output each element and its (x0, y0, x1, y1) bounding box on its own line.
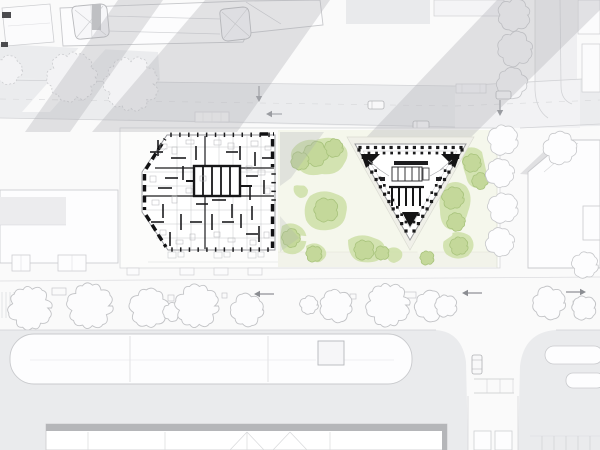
tree (306, 246, 322, 262)
column-marker (387, 191, 390, 194)
tree (450, 237, 468, 255)
tree (572, 296, 596, 320)
column-marker (447, 171, 450, 174)
column-marker (375, 178, 378, 181)
column-marker (387, 200, 390, 203)
column-marker (421, 146, 424, 149)
tree (420, 251, 434, 265)
column-marker (426, 207, 429, 210)
column-marker (379, 185, 382, 188)
tree (354, 240, 374, 260)
column-marker (422, 206, 425, 209)
column-marker (428, 152, 431, 155)
column-marker (374, 146, 377, 149)
tree (375, 246, 389, 260)
column-marker (421, 215, 424, 218)
column-marker (357, 148, 360, 151)
column-marker (374, 169, 377, 172)
column-marker (430, 200, 433, 203)
tree (435, 295, 457, 317)
column-marker (375, 152, 378, 155)
neighbor-building-west (0, 190, 118, 271)
column-marker (413, 152, 416, 155)
column-marker (443, 178, 446, 181)
column-marker (444, 146, 447, 149)
column-marker (436, 152, 439, 155)
column-marker (417, 222, 420, 225)
column-marker (434, 193, 437, 196)
tree (487, 193, 518, 223)
tree (314, 198, 338, 222)
column-marker (421, 152, 424, 155)
column-marker (383, 184, 386, 187)
column-marker (444, 169, 447, 172)
column-marker (383, 193, 386, 196)
column-marker (397, 146, 400, 149)
column-marker (436, 146, 439, 149)
column-marker (451, 152, 454, 155)
column-marker (396, 206, 399, 209)
column-marker (430, 191, 433, 194)
south-buildings (46, 424, 512, 450)
column-marker (413, 146, 416, 149)
column-marker (400, 213, 403, 216)
column-marker (392, 207, 395, 210)
site-plan-canvas (0, 0, 600, 450)
column-marker (396, 215, 399, 218)
column-marker (383, 152, 386, 155)
column-marker (412, 229, 415, 232)
column-marker (426, 199, 429, 202)
column-marker (366, 146, 369, 149)
column-marker (370, 171, 373, 174)
column-marker (390, 146, 393, 149)
tree (487, 125, 518, 155)
column-marker (405, 146, 408, 149)
column-marker (390, 152, 393, 155)
site-plan-svg (0, 0, 600, 450)
column-marker (452, 146, 455, 149)
column-marker (405, 152, 408, 155)
column-marker (400, 222, 403, 225)
column-marker (439, 185, 442, 188)
column-marker (428, 146, 431, 149)
column-marker (443, 152, 446, 155)
column-marker (368, 152, 371, 155)
column-marker (460, 148, 463, 151)
column-marker (398, 152, 401, 155)
column-marker (435, 184, 438, 187)
column-marker (382, 146, 385, 149)
column-marker (404, 229, 407, 232)
